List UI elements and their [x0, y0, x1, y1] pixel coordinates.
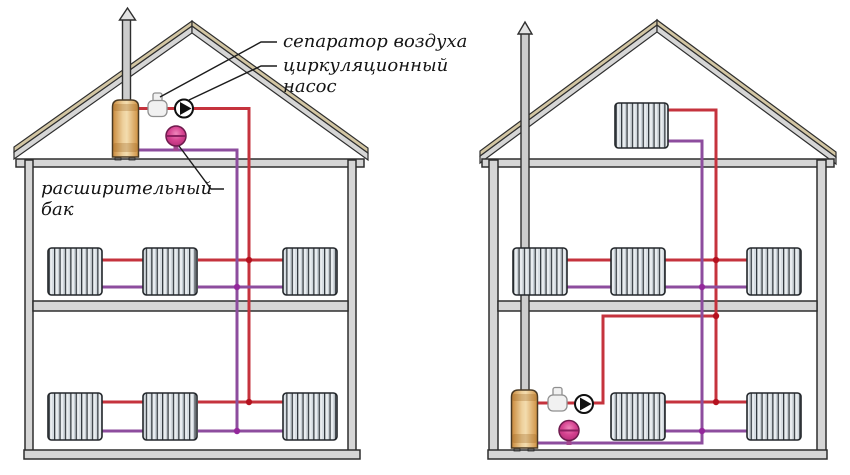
roof-slope: [14, 26, 192, 159]
wall: [25, 160, 33, 452]
pipe-junction: [699, 428, 705, 434]
circulation-pump: [575, 395, 593, 413]
chimney: [521, 30, 529, 391]
radiator: [48, 393, 102, 440]
pipe-junction: [699, 284, 705, 290]
air-separator: [548, 388, 567, 412]
chimney: [123, 16, 131, 103]
roof-slope: [657, 25, 836, 164]
radiator: [143, 393, 197, 440]
pipe-junction: [713, 399, 719, 405]
boiler: [113, 100, 139, 160]
boiler: [512, 390, 538, 451]
pipe-junction: [713, 257, 719, 263]
right-house: [480, 20, 836, 459]
wall: [348, 160, 356, 452]
diagram-canvas: сепаратор воздуха циркуляционный насос р…: [0, 0, 850, 475]
wall: [489, 160, 498, 452]
expansion-tank-label: расширительный бак: [41, 178, 213, 220]
attic-floor-slab: [482, 159, 834, 167]
radiator: [611, 393, 665, 440]
radiator: [283, 248, 337, 295]
pipe-junction: [713, 313, 719, 319]
air-separator-label: сепаратор воздуха: [283, 31, 483, 52]
circulation-pump-label: циркуляционный насос: [283, 55, 449, 97]
floor-slab: [33, 301, 348, 311]
radiator: [283, 393, 337, 440]
pipe-junction: [234, 428, 240, 434]
ground-slab: [488, 450, 827, 459]
supply-pipe: [538, 316, 716, 403]
radiator: [513, 248, 567, 295]
pipe-junction: [246, 399, 252, 405]
pipe-junction: [234, 284, 240, 290]
radiator: [747, 248, 801, 295]
radiator: [747, 393, 801, 440]
chimney-cap: [120, 8, 136, 20]
chimney-cap: [518, 22, 532, 34]
pipe-junction: [246, 257, 252, 263]
roof-slope: [14, 21, 192, 152]
radiator: [615, 103, 668, 148]
roof-slope: [657, 20, 836, 157]
radiator: [611, 248, 665, 295]
air-separator: [148, 93, 167, 117]
expansion-tank: [166, 126, 186, 151]
ground-slab: [24, 450, 360, 459]
radiator: [143, 248, 197, 295]
wall: [817, 160, 826, 452]
expansion-tank: [559, 421, 579, 446]
circulation-pump: [175, 100, 193, 118]
supply-pipe: [668, 110, 716, 402]
radiator: [48, 248, 102, 295]
floor-slab: [498, 301, 817, 311]
